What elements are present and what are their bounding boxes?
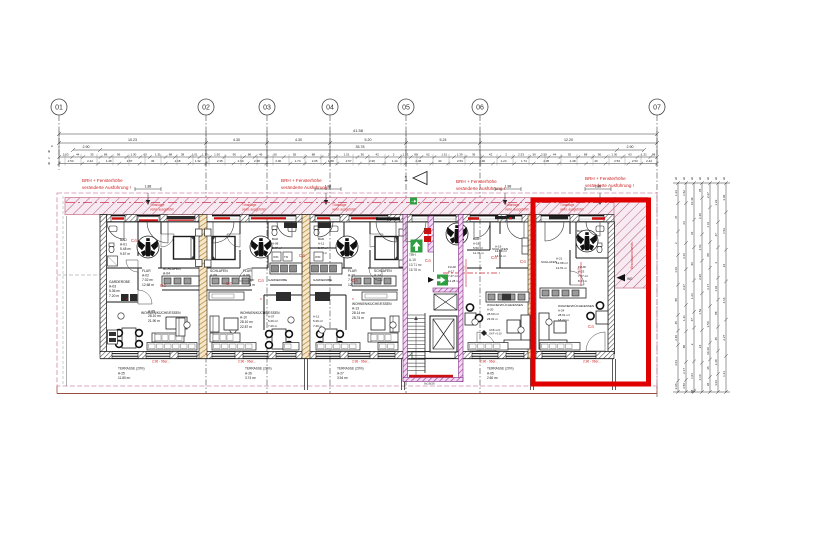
svg-text:1.32: 1.32: [195, 159, 201, 163]
svg-text:SCHLAFEN: SCHLAFEN: [210, 269, 228, 273]
svg-text:9x18/26: 9x18/26: [424, 382, 435, 386]
svg-text:4.63: 4.63: [698, 244, 702, 250]
svg-text:36: 36: [532, 153, 536, 157]
svg-text:62: 62: [426, 153, 430, 157]
svg-text:C⊙: C⊙: [588, 324, 595, 329]
svg-text:Türanlage: Türanlage: [242, 203, 257, 207]
svg-text:40: 40: [47, 149, 51, 153]
svg-text:2.53: 2.53: [68, 159, 74, 163]
svg-text:3.50: 3.50: [682, 383, 686, 389]
svg-text:5.36 m²: 5.36 m²: [109, 289, 121, 293]
svg-text:verkl. ausgeführt: verkl. ausgeführt: [150, 208, 174, 212]
svg-text:WOHNEN/KÜCHE/ESSEN: WOHNEN/KÜCHE/ESSEN: [352, 302, 392, 306]
svg-text:40: 40: [438, 159, 442, 163]
svg-text:1.51: 1.51: [192, 153, 198, 157]
svg-text:47: 47: [690, 318, 694, 322]
svg-text:5.47 m²: 5.47 m²: [272, 246, 282, 250]
svg-text:28.10 m²: 28.10 m²: [240, 320, 254, 324]
svg-text:veränderte Ausführung !: veränderte Ausführung !: [585, 183, 634, 188]
svg-text:2.42: 2.42: [87, 159, 93, 163]
svg-text:1.31: 1.31: [155, 153, 161, 157]
svg-text:01: 01: [55, 105, 63, 112]
svg-text:2.17: 2.17: [706, 284, 710, 290]
svg-text:9.57 m: 9.57 m: [120, 252, 130, 256]
svg-text:TERRASSE (20%): TERRASSE (20%): [337, 367, 364, 371]
svg-text:88: 88: [674, 298, 678, 302]
svg-text:2.53: 2.53: [457, 159, 463, 163]
svg-text:44: 44: [553, 153, 557, 157]
svg-text:Türanlage: Türanlage: [332, 203, 347, 207]
svg-text:A-04: A-04: [163, 272, 170, 276]
svg-text:41.58: 41.58: [353, 128, 364, 133]
svg-text:Brandwand beids.: Brandwand beids.: [630, 241, 634, 268]
svg-text:88: 88: [706, 253, 710, 257]
svg-text:36: 36: [674, 176, 678, 180]
svg-text:Türanlage: Türanlage: [560, 203, 575, 207]
svg-text:1.88: 1.88: [145, 185, 152, 189]
svg-text:36: 36: [690, 176, 694, 180]
svg-text:BRH + Fensterhöhe: BRH + Fensterhöhe: [281, 178, 322, 183]
svg-text:x: x: [308, 352, 310, 356]
svg-text:1.24: 1.24: [501, 159, 507, 163]
svg-text:C⊙: C⊙: [425, 258, 432, 263]
svg-text:1.13: 1.13: [402, 153, 408, 157]
svg-text:2.53: 2.53: [541, 153, 547, 157]
svg-text:WM: WM: [273, 255, 279, 259]
svg-text:45: 45: [259, 153, 263, 157]
svg-text:A-13: A-13: [352, 307, 359, 311]
svg-text:35: 35: [90, 153, 94, 157]
svg-text:36: 36: [714, 176, 718, 180]
svg-text:7.02 m²: 7.02 m²: [142, 278, 154, 282]
svg-text:GARDEROBE: GARDEROBE: [109, 280, 131, 284]
svg-text:1.51: 1.51: [344, 153, 350, 157]
svg-text:1.41: 1.41: [682, 315, 686, 321]
svg-text:1.88: 1.88: [505, 185, 512, 189]
svg-text:36: 36: [706, 366, 710, 370]
svg-text:2.53: 2.53: [518, 153, 524, 157]
svg-text:WOHNEN/KÜCHE/ESSEN: WOHNEN/KÜCHE/ESSEN: [558, 304, 594, 308]
svg-text:3.94 m²: 3.94 m²: [337, 376, 348, 380]
svg-text:GKB vorh.: GKB vorh.: [489, 328, 501, 332]
svg-text:4.16: 4.16: [682, 253, 686, 259]
svg-text:A-18: A-18: [473, 242, 480, 246]
svg-text:88: 88: [682, 345, 686, 349]
svg-text:2.05: 2.05: [312, 159, 318, 163]
svg-text:TERRASSE (20%): TERRASSE (20%): [487, 367, 514, 371]
svg-text:SCHLAFEN: SCHLAFEN: [541, 260, 557, 264]
svg-text:88: 88: [690, 389, 694, 393]
svg-text:2.90: 2.90: [627, 145, 634, 149]
svg-text:2.48: 2.48: [570, 159, 576, 163]
svg-text:verkl. ausgeführt: verkl. ausgeführt: [505, 208, 529, 212]
svg-text:FLUR: FLUR: [348, 269, 357, 273]
svg-text:2.27: 2.27: [706, 192, 710, 198]
svg-text:A-15: A-15: [409, 258, 416, 262]
svg-text:2.96: 2.96: [698, 274, 702, 280]
svg-text:2.90: 2.90: [275, 159, 281, 163]
svg-text:BRH + Fensterhöhe: BRH + Fensterhöhe: [82, 178, 123, 183]
svg-text:5.48 m²: 5.48 m²: [120, 247, 132, 251]
svg-text:88: 88: [414, 153, 418, 157]
svg-text:1.88: 1.88: [325, 185, 332, 189]
svg-text:88: 88: [104, 153, 108, 157]
svg-text:A-19: A-19: [495, 245, 502, 249]
svg-text:21.90 m: 21.90 m: [148, 319, 160, 323]
svg-text:2.05: 2.05: [543, 159, 549, 163]
svg-text:Türanlage: Türanlage: [505, 203, 520, 207]
svg-text:13.71 m²: 13.71 m²: [409, 263, 422, 267]
svg-text:23.01 m: 23.01 m: [487, 317, 498, 321]
svg-text:A-26: A-26: [245, 371, 252, 375]
svg-text:x: x: [126, 297, 128, 301]
svg-text:A-07: A-07: [268, 315, 275, 319]
svg-text:88: 88: [714, 311, 718, 315]
svg-text:4.63: 4.63: [674, 360, 678, 366]
svg-text:C⊙: C⊙: [352, 278, 359, 283]
svg-text:28.14 m²: 28.14 m²: [352, 311, 366, 315]
svg-text:4.30: 4.30: [295, 138, 302, 142]
svg-text:06: 06: [476, 105, 484, 112]
svg-text:TERRASSE (20%): TERRASSE (20%): [118, 367, 145, 371]
svg-text:1.23: 1.23: [690, 293, 694, 299]
svg-text:2.90: 2.90: [83, 145, 90, 149]
svg-text:45: 45: [714, 337, 718, 341]
svg-text:2.40: 2.40: [674, 335, 678, 341]
svg-text:10.49: 10.49: [690, 197, 694, 205]
svg-text:BAD: BAD: [318, 237, 325, 241]
svg-text:A-25: A-25: [118, 371, 125, 375]
svg-text:5.26 m²: 5.26 m²: [268, 319, 278, 323]
svg-text:5.47 m²: 5.47 m²: [318, 246, 328, 250]
svg-text:2.40: 2.40: [698, 213, 702, 219]
svg-text:28.10 m²: 28.10 m²: [148, 314, 162, 318]
svg-text:2.17: 2.17: [682, 368, 686, 374]
svg-text:2.53: 2.53: [63, 153, 69, 157]
svg-text:C⊙: C⊙: [520, 259, 527, 264]
svg-text:1.30: 1.30: [611, 153, 617, 157]
svg-text:88: 88: [248, 153, 252, 157]
svg-text:26: 26: [274, 153, 278, 157]
svg-text:1.52: 1.52: [722, 228, 726, 234]
svg-text:GARDEROBE: GARDEROBE: [313, 278, 332, 282]
svg-text:1.41: 1.41: [706, 221, 710, 227]
svg-text:C⊙: C⊙: [131, 238, 138, 243]
svg-text:2.96 - 96er...: 2.96 - 96er...: [480, 360, 498, 364]
svg-text:x: x: [260, 297, 262, 301]
svg-text:BRH + Fensterhöhe: BRH + Fensterhöhe: [585, 176, 626, 181]
svg-text:2.96 - 96er...: 2.96 - 96er...: [583, 360, 601, 364]
svg-text:veränderte Ausführung !: veränderte Ausführung !: [456, 186, 505, 191]
svg-text:veränderte Ausführung !: veränderte Ausführung !: [82, 185, 131, 190]
svg-text:x: x: [352, 297, 354, 301]
svg-text:C⊙: C⊙: [299, 253, 306, 258]
svg-text:15.78 m: 15.78 m: [409, 268, 421, 272]
svg-text:C⊙: C⊙: [160, 283, 167, 288]
svg-text:verkl. ausgeführt: verkl. ausgeführt: [560, 208, 584, 212]
svg-text:12.20: 12.20: [564, 138, 573, 142]
svg-text:1.23: 1.23: [674, 190, 678, 196]
svg-text:7.20 m: 7.20 m: [109, 294, 119, 298]
svg-text:1.51: 1.51: [441, 153, 447, 157]
svg-text:2.57: 2.57: [346, 159, 352, 163]
svg-text:1.52: 1.52: [682, 190, 686, 196]
svg-text:A-24: A-24: [558, 309, 565, 313]
svg-text:44: 44: [76, 153, 80, 157]
svg-text:35.78: 35.78: [356, 145, 365, 149]
svg-text:C⊙: C⊙: [491, 255, 498, 260]
svg-text:2.53: 2.53: [632, 159, 638, 163]
svg-text:96: 96: [706, 382, 710, 386]
svg-text:14.51 m: 14.51 m: [556, 266, 567, 270]
svg-text:46: 46: [47, 161, 51, 165]
svg-text:A-05: A-05: [148, 310, 155, 314]
svg-text:36: 36: [706, 176, 710, 180]
svg-text:25.74 m: 25.74 m: [352, 316, 364, 320]
svg-text:1.13: 1.13: [202, 153, 208, 157]
svg-text:11.80 m²: 11.80 m²: [118, 376, 130, 380]
svg-text:12.68 m: 12.68 m: [142, 283, 154, 287]
svg-text:1.23: 1.23: [714, 199, 718, 205]
svg-text:FLUR: FLUR: [142, 269, 151, 273]
svg-text:96: 96: [690, 262, 694, 266]
svg-text:28.60 m²: 28.60 m²: [487, 312, 499, 316]
svg-text:36: 36: [722, 176, 726, 180]
svg-text:88: 88: [312, 153, 316, 157]
svg-text:40: 40: [594, 159, 598, 163]
svg-text:GARDEROBE: GARDEROBE: [268, 278, 287, 282]
svg-text:1.48: 1.48: [106, 159, 112, 163]
svg-text:1.31: 1.31: [641, 153, 647, 157]
svg-text:24: 24: [682, 221, 686, 225]
svg-text:2.18: 2.18: [175, 159, 181, 163]
svg-text:SCHLAFEN: SCHLAFEN: [163, 267, 181, 271]
svg-text:WOHNEN/KÜCHE/ESSEN: WOHNEN/KÜCHE/ESSEN: [240, 311, 280, 315]
svg-text:5.50 m²: 5.50 m²: [473, 246, 483, 250]
svg-text:2.96 - 96er...: 2.96 - 96er...: [238, 360, 256, 364]
svg-text:1.30: 1.30: [130, 153, 136, 157]
svg-text:96: 96: [233, 153, 237, 157]
svg-text:36: 36: [151, 159, 155, 163]
svg-text:3.50: 3.50: [706, 321, 710, 327]
svg-text:C⊙: C⊙: [258, 278, 265, 283]
svg-text:38: 38: [181, 153, 185, 157]
svg-text:2.57: 2.57: [127, 159, 133, 163]
svg-text:1.01: 1.01: [690, 373, 694, 379]
svg-text:A-12: A-12: [313, 315, 320, 319]
svg-text:7.27 m²: 7.27 m²: [448, 274, 458, 278]
svg-text:2.53: 2.53: [614, 159, 620, 163]
svg-text:02: 02: [202, 105, 210, 112]
svg-text:2.90: 2.90: [238, 159, 244, 163]
svg-text:47: 47: [674, 215, 678, 219]
svg-text:FLUR: FLUR: [243, 269, 252, 273]
svg-text:A-11: A-11: [318, 242, 324, 246]
svg-text:11.47 m: 11.47 m: [473, 251, 484, 255]
svg-text:A-27: A-27: [337, 371, 344, 375]
svg-text:42: 42: [489, 153, 493, 157]
svg-text:2.48: 2.48: [415, 159, 421, 163]
svg-text:42: 42: [376, 153, 380, 157]
svg-text:1.01: 1.01: [714, 285, 718, 291]
svg-text:07: 07: [653, 105, 661, 112]
svg-text:TERRASSE (20%): TERRASSE (20%): [245, 367, 272, 371]
svg-text:2.60 m²: 2.60 m²: [487, 376, 498, 380]
svg-text:04: 04: [326, 105, 334, 112]
svg-text:4.30: 4.30: [233, 138, 240, 142]
svg-text:WOHNEN/KÜCHE/ESSEN: WOHNEN/KÜCHE/ESSEN: [487, 303, 523, 307]
svg-text:1.39: 1.39: [457, 153, 463, 157]
svg-text:96: 96: [598, 153, 602, 157]
svg-text:36: 36: [690, 231, 694, 235]
svg-text:A-05: A-05: [487, 371, 494, 375]
svg-text:1.58: 1.58: [328, 159, 334, 163]
svg-text:88: 88: [652, 153, 656, 157]
svg-text:SCHLAFEN: SCHLAFEN: [374, 269, 392, 273]
svg-text:4.16: 4.16: [722, 297, 726, 303]
svg-text:WM: WM: [315, 255, 321, 259]
svg-text:4.16: 4.16: [577, 267, 581, 273]
svg-text:1.50: 1.50: [214, 153, 220, 157]
svg-text:5.24: 5.24: [440, 138, 447, 142]
svg-text:2.27: 2.27: [722, 334, 726, 340]
svg-text:1.74: 1.74: [295, 159, 301, 163]
svg-text:55: 55: [293, 153, 297, 157]
svg-text:2.40: 2.40: [714, 359, 718, 365]
svg-text:96: 96: [117, 153, 121, 157]
svg-text:22.87 m: 22.87 m: [240, 325, 252, 329]
svg-text:10.49: 10.49: [706, 347, 710, 355]
svg-text:24: 24: [722, 264, 726, 268]
svg-text:TRH: TRH: [409, 253, 416, 257]
svg-text:45: 45: [674, 321, 678, 325]
svg-text:x: x: [205, 352, 207, 356]
svg-text:A-03: A-03: [109, 285, 116, 289]
svg-text:63: 63: [144, 153, 148, 157]
svg-text:Türanlage: Türanlage: [150, 203, 165, 207]
svg-text:A-02: A-02: [142, 274, 149, 278]
svg-text:12.98 m²: 12.98 m²: [495, 249, 507, 253]
svg-text:A-01: A-01: [120, 243, 127, 247]
svg-text:63: 63: [628, 153, 632, 157]
svg-text:03: 03: [263, 105, 271, 112]
svg-text:36: 36: [682, 176, 686, 180]
svg-text:2.96: 2.96: [722, 194, 726, 200]
svg-text:verkl. ausgeführt: verkl. ausgeführt: [332, 208, 356, 212]
svg-text:3.74 m²: 3.74 m²: [245, 376, 256, 380]
svg-text:1: 1: [404, 176, 408, 183]
svg-text:2.90: 2.90: [369, 159, 375, 163]
svg-text:4.16: 4.16: [698, 374, 702, 380]
svg-text:BRH + Fensterhöhe: BRH + Fensterhöhe: [456, 179, 497, 184]
svg-text:verkl. ausgeführt: verkl. ausgeführt: [242, 208, 266, 212]
svg-text:2.96 - 96er...: 2.96 - 96er...: [352, 360, 370, 364]
svg-text:2.96: 2.96: [674, 383, 678, 389]
svg-text:05: 05: [402, 105, 410, 112]
svg-text:11.28 m: 11.28 m: [448, 279, 459, 283]
svg-text:1.14: 1.14: [392, 159, 398, 163]
svg-text:28.61 m²: 28.61 m²: [558, 313, 570, 317]
svg-text:A-10: A-10: [240, 316, 247, 320]
svg-text:24: 24: [698, 344, 702, 348]
svg-text:WE: WE: [627, 277, 633, 281]
svg-text:45: 45: [698, 188, 702, 192]
svg-text:1.74: 1.74: [521, 159, 527, 163]
svg-text:7.26 m: 7.26 m: [268, 324, 278, 328]
svg-text:35: 35: [568, 153, 572, 157]
svg-text:A-20: A-20: [487, 308, 494, 312]
svg-text:1.88: 1.88: [595, 185, 602, 189]
svg-text:88: 88: [169, 153, 173, 157]
svg-text:C⊙: C⊙: [226, 281, 233, 286]
svg-text:36: 36: [361, 153, 365, 157]
svg-text:A-08: A-08: [272, 242, 279, 246]
svg-text:2.27: 2.27: [682, 284, 686, 290]
svg-text:2.96 - 96er...: 2.96 - 96er...: [152, 360, 170, 364]
svg-text:A-21: A-21: [556, 257, 563, 261]
svg-text:36: 36: [472, 153, 476, 157]
svg-text:FLUR: FLUR: [448, 265, 457, 269]
svg-text:1.01: 1.01: [674, 267, 678, 273]
svg-text:88: 88: [584, 153, 588, 157]
svg-text:5.20: 5.20: [365, 138, 372, 142]
svg-text:47: 47: [714, 233, 718, 237]
svg-text:BAD: BAD: [272, 237, 279, 241]
svg-text:10.23: 10.23: [128, 138, 137, 142]
svg-text:4.63: 4.63: [714, 380, 718, 386]
svg-text:1.41: 1.41: [722, 371, 726, 377]
svg-text:36: 36: [698, 176, 702, 180]
svg-text:2.35: 2.35: [217, 159, 223, 163]
svg-text:2.42: 2.42: [646, 159, 652, 163]
svg-text:1.52: 1.52: [698, 308, 702, 314]
svg-text:12.98 m²: 12.98 m²: [556, 261, 568, 265]
svg-text:5.26 m²: 5.26 m²: [313, 319, 323, 323]
svg-text:OKF +0.00: OKF +0.00: [489, 332, 502, 336]
